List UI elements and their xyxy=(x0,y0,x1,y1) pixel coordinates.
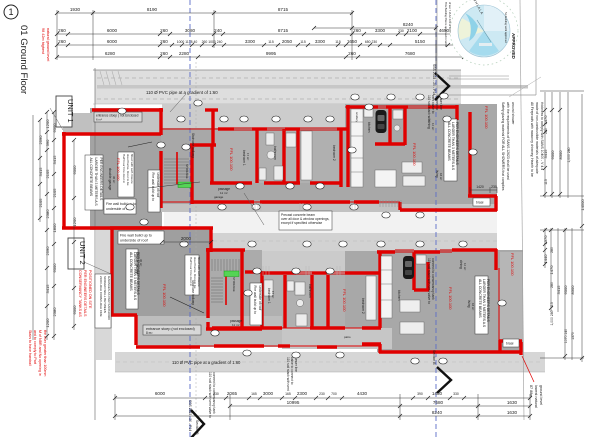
svg-text:12 m²: 12 m² xyxy=(463,263,467,270)
svg-text:of sec 7 of Act 103 of 1977: of sec 7 of Act 103 of 1977 xyxy=(448,2,452,33)
svg-text:LARGER THAN 3 METERS A.S: LARGER THAN 3 METERS A.S xyxy=(482,279,486,328)
svg-text:6000: 6000 xyxy=(107,28,118,33)
svg-text:2590: 2590 xyxy=(45,246,50,256)
svg-text:and to comply to Part: and to comply to Part xyxy=(33,330,37,364)
svg-text:2590: 2590 xyxy=(38,135,43,145)
svg-text:3300: 3300 xyxy=(315,39,326,44)
svg-text:7680: 7680 xyxy=(405,51,416,56)
svg-text:3415: 3415 xyxy=(38,167,43,177)
svg-text:thickness to comply with SANS: thickness to comply with SANS 10400 - V … xyxy=(540,102,544,170)
svg-text:LARGER THAN 3 METERS A.S: LARGER THAN 3 METERS A.S xyxy=(451,122,455,171)
svg-text:6 m²: 6 m² xyxy=(96,118,102,122)
svg-text:2100 HIGH FROM HIGH FIRE: 2100 HIGH FROM HIGH FIRE xyxy=(99,276,103,317)
svg-text:ground level: ground level xyxy=(539,385,543,405)
svg-text:5150: 5150 xyxy=(415,39,426,44)
svg-text:165: 165 xyxy=(285,392,291,396)
svg-text:17 m²: 17 m² xyxy=(246,153,250,160)
svg-text:around shower: around shower xyxy=(511,102,515,125)
svg-text:STORAGE: STORAGE xyxy=(232,277,236,292)
svg-text:6000: 6000 xyxy=(107,39,118,44)
svg-text:1440: 1440 xyxy=(543,254,548,264)
svg-text:7680: 7680 xyxy=(433,400,444,405)
svg-text:scullery: scullery xyxy=(355,112,359,123)
svg-text:1200: 1200 xyxy=(45,318,50,328)
svg-text:made of non-combustible materi: made of non-combustible materials of ade… xyxy=(535,102,539,174)
svg-text:double garage: double garage xyxy=(135,252,139,274)
svg-text:3000: 3000 xyxy=(263,391,274,396)
svg-text:1200: 1200 xyxy=(45,119,50,129)
svg-text:1630: 1630 xyxy=(507,410,518,415)
svg-text:110 Ø PVC pipe at a gradient o: 110 Ø PVC pipe at a gradient of 1:60 xyxy=(146,90,218,95)
svg-text:2105: 2105 xyxy=(45,169,50,179)
svg-text:CONSERVANCY TANKS AS: CONSERVANCY TANKS AS xyxy=(78,270,82,317)
svg-text:Fire wall build up to: Fire wall build up to xyxy=(151,173,155,202)
svg-text:1470: 1470 xyxy=(549,265,554,275)
svg-text:This Building Plan is approved: This Building Plan is approved in terms xyxy=(444,2,448,48)
svg-text:bedroom 2: bedroom 2 xyxy=(361,298,365,314)
svg-text:87 88m: 87 88m xyxy=(529,385,533,397)
svg-text:fitted with self closure: fitted with self closure xyxy=(130,154,134,184)
svg-text:9995: 9995 xyxy=(266,51,277,56)
svg-text:2050: 2050 xyxy=(282,39,293,44)
svg-text:2380: 2380 xyxy=(45,209,50,219)
svg-text:3300: 3300 xyxy=(245,39,256,44)
svg-text:115: 115 xyxy=(544,179,548,185)
svg-text:Staircase hallway: Staircase hallway xyxy=(191,280,195,305)
svg-text:All Fireproofs with masonry ch: All Fireproofs with masonry chimney, Hea… xyxy=(530,102,534,177)
svg-text:FFL 100.100: FFL 100.100 xyxy=(510,253,515,276)
svg-text:11 m²: 11 m² xyxy=(232,323,239,327)
svg-text:230: 230 xyxy=(398,29,404,33)
svg-text:sewer line: sewer line xyxy=(294,357,298,372)
svg-text:240: 240 xyxy=(214,28,222,33)
svg-text:entrance stoep (not enclosed): entrance stoep (not enclosed) xyxy=(146,327,195,331)
svg-text:2100: 2100 xyxy=(407,28,418,33)
svg-text:living: living xyxy=(435,170,439,178)
svg-text:FFL 100.100: FFL 100.100 xyxy=(448,287,453,310)
svg-text:ALL CONCRETE BEAMS: ALL CONCRETE BEAMS xyxy=(129,252,133,291)
svg-text:braai: braai xyxy=(506,342,514,346)
svg-text:2300: 2300 xyxy=(297,391,308,396)
svg-text:8240: 8240 xyxy=(432,410,443,415)
svg-text:1420: 1420 xyxy=(476,185,484,189)
svg-text:36 m²: 36 m² xyxy=(139,259,143,266)
svg-text:Fire wall build up to: Fire wall build up to xyxy=(253,286,257,315)
svg-text:2065: 2065 xyxy=(227,391,238,396)
svg-text:12 m²: 12 m² xyxy=(431,123,435,130)
svg-text:PER ENGINEERS DETAILS: PER ENGINEERS DETAILS xyxy=(99,158,103,201)
svg-text:36 m²: 36 m² xyxy=(112,176,116,183)
svg-text:APPROVED: APPROVED xyxy=(511,33,516,59)
svg-text:1070 140: 1070 140 xyxy=(564,329,568,343)
svg-text:PER ENGINEERS DETAILS: PER ENGINEERS DETAILS xyxy=(486,279,490,322)
svg-text:14500: 14500 xyxy=(580,199,585,211)
svg-text:entrance stoep ( not Enclosed: entrance stoep ( not Enclosed xyxy=(96,114,139,118)
svg-text:115: 115 xyxy=(550,302,554,308)
svg-text:living: living xyxy=(467,300,471,308)
svg-text:1,000 280: 1,000 280 xyxy=(567,147,571,162)
svg-text:6280: 6280 xyxy=(105,51,116,56)
svg-text:6000: 6000 xyxy=(72,165,77,175)
svg-text:260: 260 xyxy=(58,28,66,33)
svg-text:2380: 2380 xyxy=(52,307,57,317)
svg-text:with the requirements of SANS: with the requirements of SANS 12623 shal… xyxy=(506,102,510,180)
svg-text:10995: 10995 xyxy=(287,400,300,405)
svg-text:ALL CONCRETE BEAMS: ALL CONCRETE BEAMS xyxy=(478,279,482,318)
svg-text:SCREEN WALL BETWEEN: SCREEN WALL BETWEEN xyxy=(103,276,107,313)
svg-text:UNIT 2: UNIT 2 xyxy=(78,241,87,265)
svg-text:260: 260 xyxy=(353,28,361,33)
svg-text:FFL 100.100: FFL 100.100 xyxy=(412,143,417,166)
svg-text:260: 260 xyxy=(348,51,356,56)
svg-text:FFL 100.100: FFL 100.100 xyxy=(229,148,234,171)
svg-text:6000: 6000 xyxy=(52,123,57,133)
svg-text:8300: 8300 xyxy=(570,285,575,295)
svg-text:fitted with self closure: fitted with self closure xyxy=(197,257,201,287)
svg-text:8300: 8300 xyxy=(558,150,563,160)
svg-text:115: 115 xyxy=(335,40,341,44)
svg-text:390: 390 xyxy=(417,392,423,396)
svg-text:PER ENGINEERS DETAILS: PER ENGINEERS DETAILS xyxy=(455,122,459,165)
svg-text:260: 260 xyxy=(160,28,168,33)
svg-text:ALL CONCRETE BEAMS: ALL CONCRETE BEAMS xyxy=(89,158,93,197)
svg-text:SSS 2023 - 20 - P14: SSS 2023 - 20 - P14 xyxy=(188,400,192,431)
svg-text:connect to conservancy tank: connect to conservancy tank xyxy=(212,372,216,414)
svg-text:18 m²: 18 m² xyxy=(471,303,475,310)
svg-text:6000: 6000 xyxy=(52,263,57,273)
svg-text:bedroom 1: bedroom 1 xyxy=(267,288,271,304)
svg-text:1: 1 xyxy=(8,7,13,17)
svg-text:1200: 1200 xyxy=(72,217,77,227)
svg-text:700: 700 xyxy=(331,392,337,396)
svg-text:LARGER THAN 3 METERS A.S: LARGER THAN 3 METERS A.S xyxy=(94,158,98,207)
svg-text:except if specified otherwise: except if specified otherwise xyxy=(281,221,322,225)
svg-text:390: 390 xyxy=(45,139,50,146)
svg-text:1800: 1800 xyxy=(52,223,57,233)
svg-text:SSS 2023 - 20 - P14: SSS 2023 - 20 - P14 xyxy=(432,64,436,95)
svg-text:260: 260 xyxy=(160,51,168,56)
svg-text:8240: 8240 xyxy=(403,22,414,27)
svg-text:280: 280 xyxy=(550,247,554,253)
svg-text:double garage: double garage xyxy=(108,168,112,190)
svg-text:natural ground level: natural ground level xyxy=(46,28,50,62)
svg-text:6000: 6000 xyxy=(155,391,166,396)
svg-text:FFL 100.100: FFL 100.100 xyxy=(162,284,167,307)
svg-text:230: 230 xyxy=(491,185,497,189)
svg-text:bedroom 1: bedroom 1 xyxy=(242,150,246,166)
svg-text:vent valve to: vent valve to xyxy=(431,95,435,114)
svg-text:Staircase hallway: Staircase hallway xyxy=(191,133,195,158)
svg-text:connect to conservancy tank: connect to conservancy tank xyxy=(431,258,435,300)
svg-text:3415: 3415 xyxy=(45,284,50,294)
svg-text:6000: 6000 xyxy=(563,285,568,295)
svg-text:110 soil stack with vent valve: 110 soil stack with vent valve to xyxy=(208,372,212,418)
svg-text:UNIT 1: UNIT 1 xyxy=(66,99,75,123)
svg-text:8715: 8715 xyxy=(278,7,289,12)
svg-text:280: 280 xyxy=(550,282,554,288)
svg-text:330: 330 xyxy=(453,392,459,396)
svg-text:3415: 3415 xyxy=(52,155,57,165)
svg-text:1930: 1930 xyxy=(70,7,81,12)
svg-text:260: 260 xyxy=(160,39,168,44)
svg-text:2105: 2105 xyxy=(38,198,43,208)
svg-text:110 soil stack with: 110 soil stack with xyxy=(427,95,431,122)
svg-text:dining: dining xyxy=(459,260,463,269)
svg-text:8 m²: 8 m² xyxy=(146,331,152,335)
svg-text:2105: 2105 xyxy=(52,188,57,198)
svg-text:valve to connect to: valve to connect to xyxy=(290,357,294,385)
svg-text:8715: 8715 xyxy=(278,28,289,33)
svg-text:Stairs to have handrail: Stairs to have handrail xyxy=(28,330,32,366)
svg-text:patio: patio xyxy=(344,335,351,339)
svg-text:165: 165 xyxy=(251,392,257,396)
svg-text:17 m²: 17 m² xyxy=(271,291,275,298)
svg-text:POSITIONED ON SITE: POSITIONED ON SITE xyxy=(88,270,92,309)
svg-text:braai: braai xyxy=(476,201,484,205)
svg-text:PER ENGINEERS DETAILS: PER ENGINEERS DETAILS xyxy=(83,270,87,317)
svg-text:Half hour Fire door in: Half hour Fire door in xyxy=(122,154,126,183)
svg-text:8190: 8190 xyxy=(147,7,158,12)
svg-text:underside of roof: underside of roof xyxy=(120,239,149,243)
svg-text:110 soil stack with vent valve: 110 soil stack with vent valve to xyxy=(427,258,431,304)
svg-text:2000: 2000 xyxy=(181,236,192,241)
svg-text:bedroom 2: bedroom 2 xyxy=(332,145,336,161)
svg-text:260 1000 240: 260 1000 240 xyxy=(202,40,223,44)
svg-text:steel frame. Door to be: steel frame. Door to be xyxy=(126,154,130,186)
svg-text:underside of roof: underside of roof xyxy=(258,286,262,311)
svg-text:Section B: Section B xyxy=(195,420,199,435)
svg-text:bathroom: bathroom xyxy=(273,146,277,160)
svg-text:1630: 1630 xyxy=(507,400,518,405)
svg-text:01 Ground Floor: 01 Ground Floor xyxy=(18,25,29,94)
svg-text:115: 115 xyxy=(300,40,306,44)
svg-text:ALL CONCRETE BEAMS: ALL CONCRETE BEAMS xyxy=(447,122,451,161)
svg-text:dining: dining xyxy=(427,120,431,129)
svg-text:98 42m highest: 98 42m highest xyxy=(41,28,45,55)
svg-text:kitchen: kitchen xyxy=(397,290,401,301)
svg-text:Fire wall build up to: Fire wall build up to xyxy=(120,234,152,238)
svg-text:FFL 100.100: FFL 100.100 xyxy=(342,289,347,312)
svg-text:1370: 1370 xyxy=(571,332,575,340)
svg-text:230: 230 xyxy=(319,392,325,396)
svg-text:1000 1178 40: 1000 1178 40 xyxy=(177,40,198,44)
svg-text:3415: 3415 xyxy=(556,285,561,295)
svg-text:110 soil stack with vent: 110 soil stack with vent xyxy=(286,357,290,391)
svg-text:Section B: Section B xyxy=(432,350,436,365)
svg-text:1370: 1370 xyxy=(543,235,548,245)
svg-text:18 m²: 18 m² xyxy=(439,173,443,180)
svg-text:the riser greater than 100mm: the riser greater than 100mm xyxy=(43,330,47,376)
svg-text:4430: 4430 xyxy=(357,391,368,396)
svg-text:FFL 100.100: FFL 100.100 xyxy=(484,106,489,129)
svg-text:3300: 3300 xyxy=(375,28,386,33)
svg-text:Safety glazing material FOR AL: Safety glazing material FOR ALL SHOWERS … xyxy=(501,102,505,191)
svg-text:kitchen: kitchen xyxy=(367,122,371,133)
svg-text:2280: 2280 xyxy=(179,51,190,56)
svg-text:650 230: 650 230 xyxy=(365,40,377,44)
svg-text:lowest natural: lowest natural xyxy=(534,385,538,408)
svg-text:underside of roof: underside of roof xyxy=(156,173,160,198)
svg-text:260: 260 xyxy=(58,39,66,44)
svg-text:115: 115 xyxy=(268,40,274,44)
svg-text:1,000 280: 1,000 280 xyxy=(550,310,554,325)
svg-text:6000: 6000 xyxy=(550,150,555,160)
svg-text:3080: 3080 xyxy=(185,28,196,33)
svg-text:110 Ø PVC pipe at a gradient o: 110 Ø PVC pipe at a gradient of 1:60 xyxy=(172,360,241,365)
svg-text:bathroom: bathroom xyxy=(308,284,312,298)
svg-text:garage: garage xyxy=(214,195,224,199)
svg-text:No building work approved: No building work approved xyxy=(504,12,508,43)
svg-text:GARAGES AS PER SANS10400: GARAGES AS PER SANS10400 xyxy=(107,276,111,320)
svg-text:6000: 6000 xyxy=(72,305,77,315)
svg-text:M of NBR and No opening in: M of NBR and No opening in xyxy=(38,330,42,376)
svg-text:STORAGE: STORAGE xyxy=(185,164,189,179)
svg-text:1650: 1650 xyxy=(347,39,358,44)
